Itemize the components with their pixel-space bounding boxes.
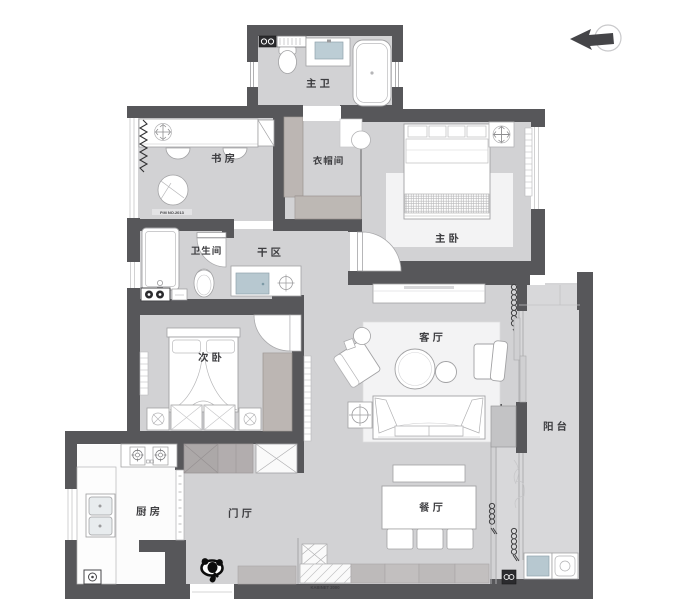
svg-text:KABINET 2000: KABINET 2000 bbox=[310, 585, 340, 590]
svg-text:P.M NO.2013: P.M NO.2013 bbox=[160, 210, 184, 215]
